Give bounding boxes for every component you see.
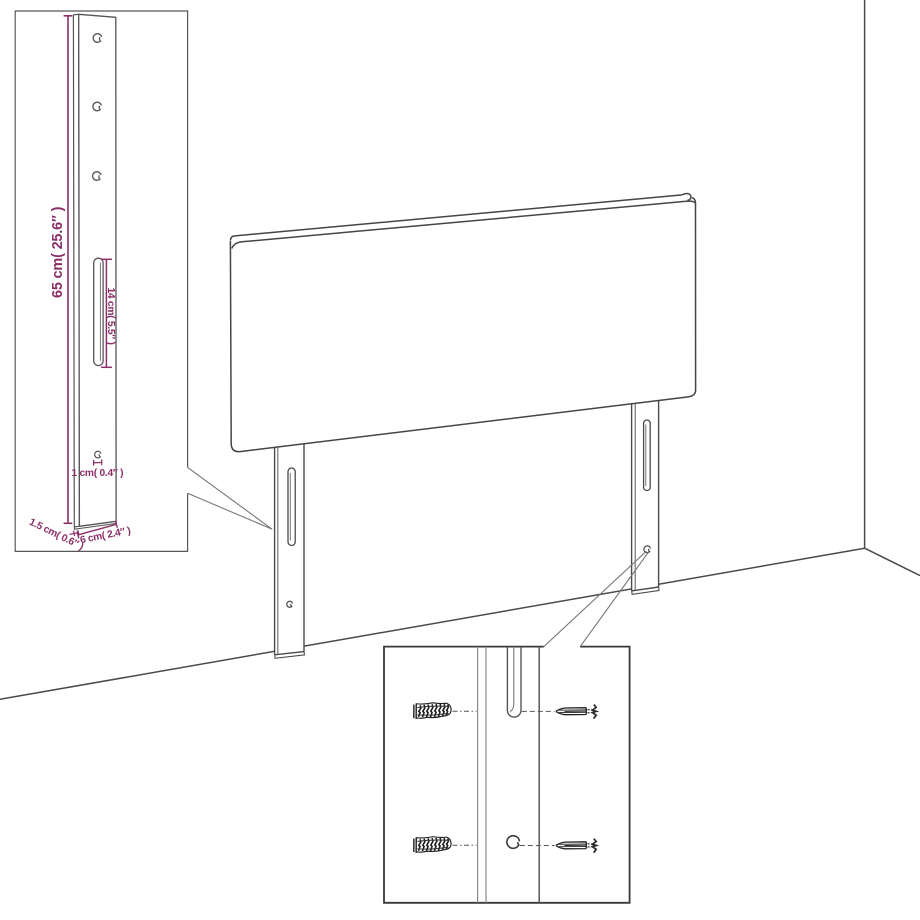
svg-text:1 cm( 0.4″ ): 1 cm( 0.4″ ) xyxy=(72,468,124,479)
svg-text:65 cm( 25.6″ ): 65 cm( 25.6″ ) xyxy=(50,206,66,298)
svg-text:14 cm( 5.5″ ): 14 cm( 5.5″ ) xyxy=(105,288,116,345)
